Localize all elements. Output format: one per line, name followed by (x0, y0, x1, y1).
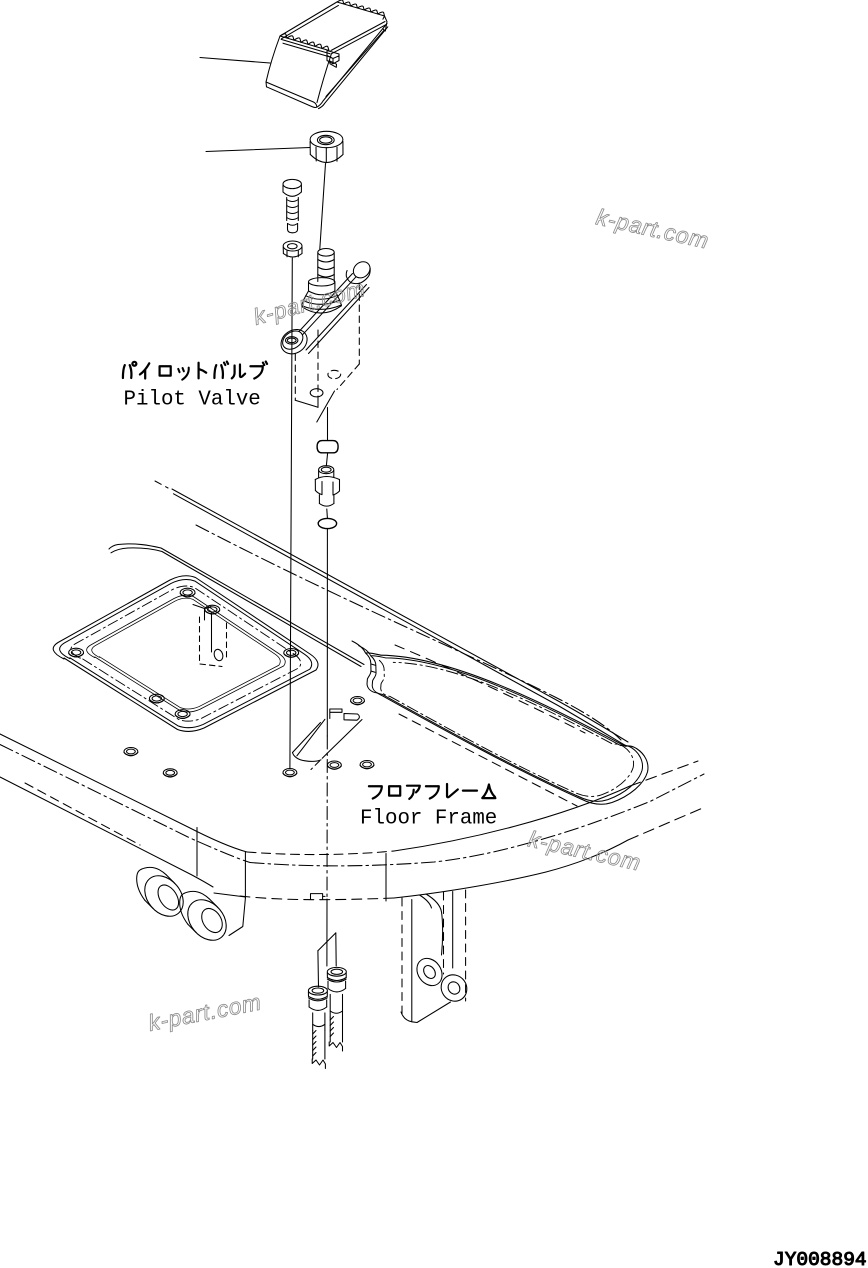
svg-text:Pilot Valve: Pilot Valve (124, 389, 261, 412)
svg-text:Floor Frame: Floor Frame (360, 808, 497, 831)
svg-text:JY008894: JY008894 (773, 1249, 867, 1268)
